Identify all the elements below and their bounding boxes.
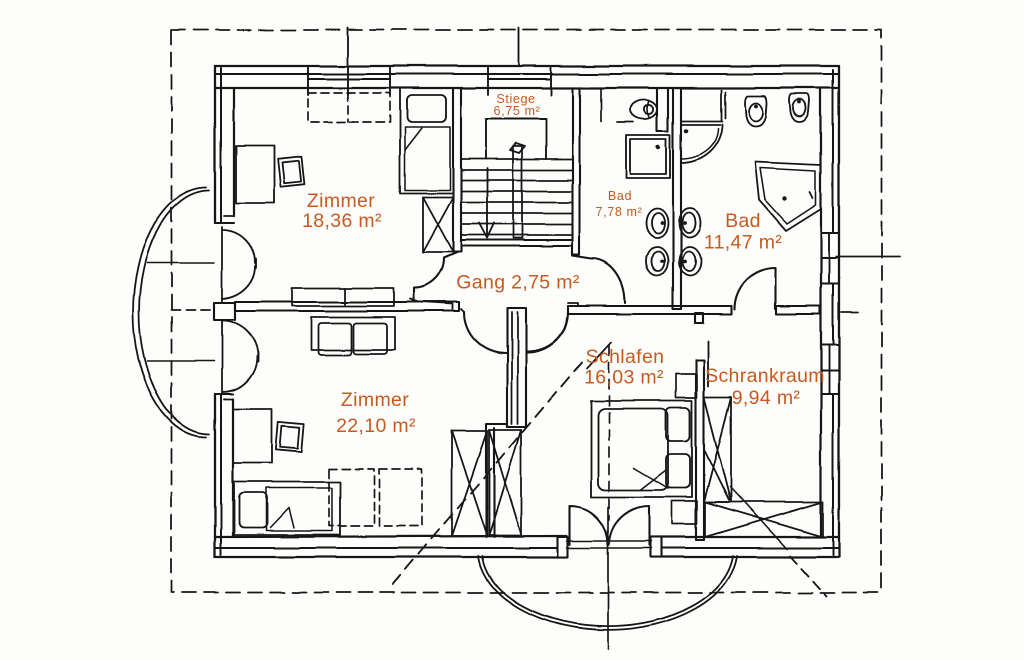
svg-text:22,10 m²: 22,10 m² — [336, 415, 416, 437]
svg-text:Schrankraum: Schrankraum — [705, 365, 825, 387]
svg-text:18,36 m²: 18,36 m² — [302, 210, 382, 232]
svg-text:6,75 m²: 6,75 m² — [494, 104, 541, 118]
svg-text:Zimmer: Zimmer — [307, 190, 375, 212]
svg-text:Bad: Bad — [608, 189, 632, 203]
svg-text:Zimmer: Zimmer — [341, 389, 409, 411]
svg-text:16,03 m²: 16,03 m² — [584, 367, 664, 389]
svg-text:9,94 m²: 9,94 m² — [732, 387, 801, 409]
svg-text:7,78 m²: 7,78 m² — [596, 205, 643, 219]
svg-text:11,47 m²: 11,47 m² — [704, 232, 782, 254]
svg-text:Schlafen: Schlafen — [586, 346, 665, 368]
svg-text:Bad: Bad — [725, 210, 761, 232]
svg-text:Gang 2,75 m²: Gang 2,75 m² — [456, 272, 580, 294]
